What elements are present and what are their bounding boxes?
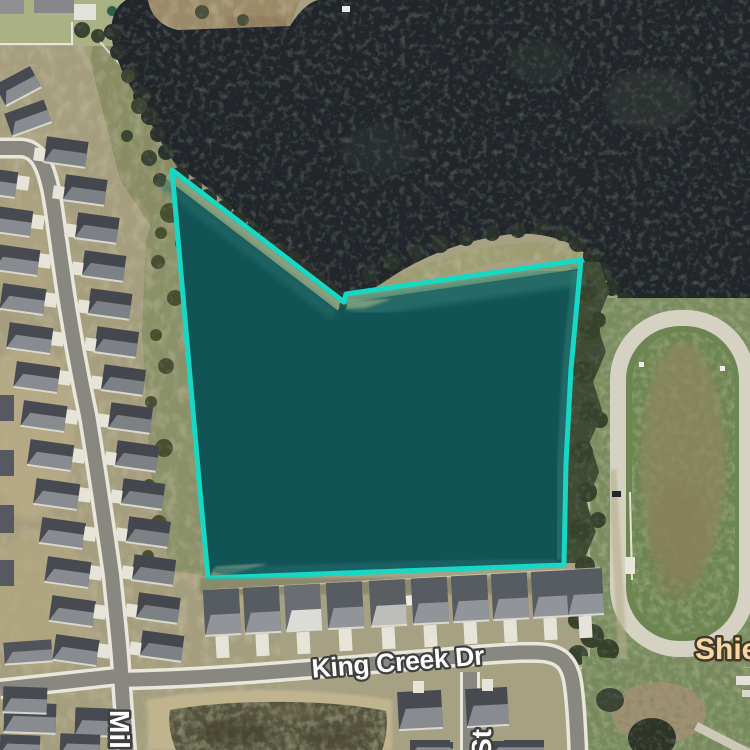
- svg-text:St: St: [466, 729, 497, 750]
- svg-text:Mil: Mil: [104, 710, 135, 749]
- svg-text:Shie: Shie: [695, 633, 750, 666]
